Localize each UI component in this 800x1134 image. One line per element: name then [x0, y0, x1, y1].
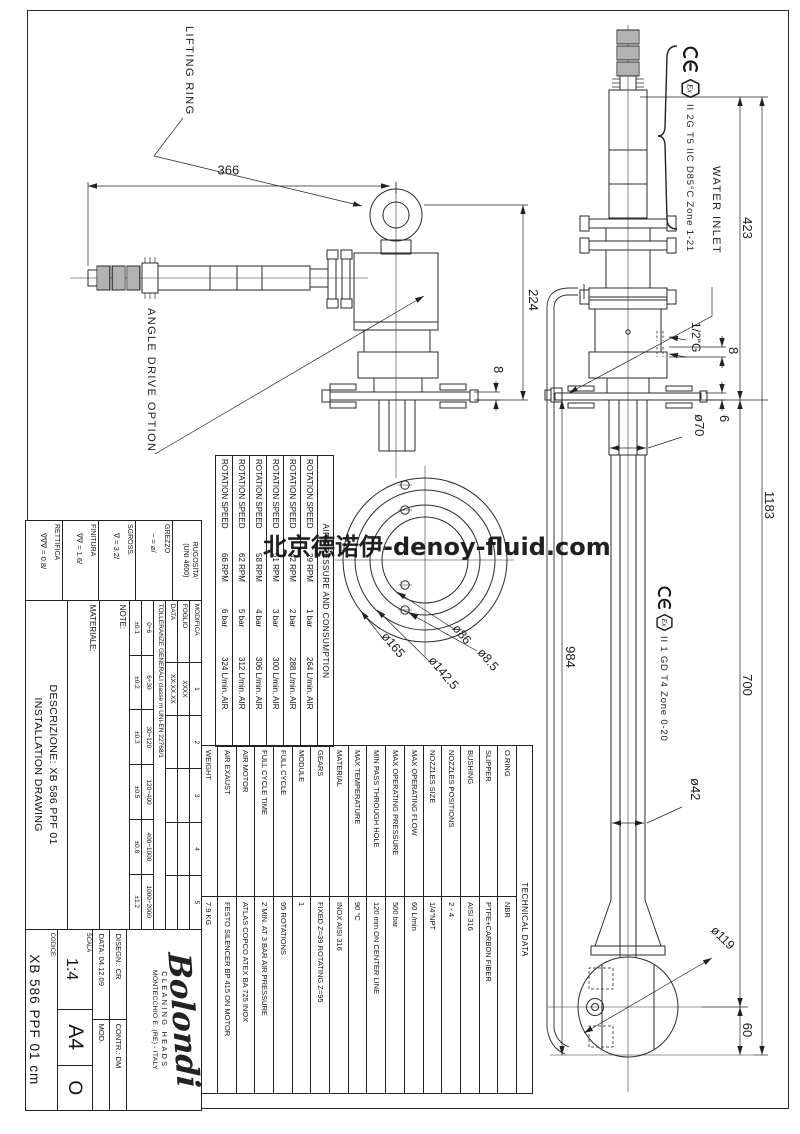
dim-plate-thickness: 6 — [717, 415, 732, 422]
tech-row: MIN PASS THROUGH HOLE120 mm ON CENTER LI… — [367, 746, 386, 1093]
drawing-code: XB 586 PPF 01 cm — [27, 930, 42, 1110]
tech-row: O.RINGNBR — [497, 746, 516, 1093]
tech-row: NOZZLES SIZE1/4"NPT — [423, 746, 442, 1093]
revision-tolerance-box: MODIFICA12345 FOGLIOXXXX DATAXX.XX.XX TO… — [26, 601, 201, 930]
mod-value: O — [58, 1066, 92, 1110]
tech-row: MAX OPERATING PRESSURE500 bar — [385, 746, 404, 1093]
rugosita-row: GREZZO~ = ⌀/ — [135, 521, 172, 600]
tech-row: FULL CYCLE TIME2 MIN. AT 3 BAR AIR PRESS… — [254, 746, 273, 1093]
material-field: MATERIALE: — [67, 601, 99, 929]
tolerances-header: TOLLERANZE GENERALI classe m UNI-EN 2276… — [153, 601, 165, 929]
rotated-drawing-area: 1183 423 700 60 984 ø70 6 8 1/2"G ø42 ø1… — [0, 0, 800, 1134]
air-table-row: ROTATION SPEED51 RPM3 bar300 L/min. AIR — [266, 456, 283, 746]
modifica-row: MODIFICA12345 — [189, 601, 201, 929]
air-table-row: ROTATION SPEED66 RPM6 bar324 L/min. AIR — [216, 456, 232, 746]
note-field: NOTE: — [99, 601, 129, 929]
svg-text:Ex: Ex — [685, 83, 695, 93]
svg-text:Ex: Ex — [660, 617, 669, 627]
dim-overall-length: 1183 — [762, 482, 777, 528]
tech-row: SLIPPERPTFE+CARBON FIBER — [479, 746, 498, 1093]
rugosita-row: FINITURA∇∇ = 1.6/ — [62, 521, 99, 600]
tech-row: MAX TEMPERATURE90 °C — [348, 746, 367, 1093]
scale-value: 1:4 — [62, 930, 80, 1009]
dim-angle-drive-length: 366 — [218, 163, 240, 178]
dim-tube-section: 700 — [740, 662, 755, 708]
dim-port-offset: 8 — [726, 347, 741, 354]
dim-motor-section: 423 — [740, 205, 755, 251]
tech-row: BUSHINGAISI 316 — [460, 746, 479, 1093]
rugosita-header: RUGOSITA' (UNI 4600) — [172, 521, 201, 600]
air-table-row: ROTATION SPEED62 RPM5 bar312 L/min. AIR — [232, 456, 249, 746]
checked-by: CONTR.: DM — [110, 1020, 126, 1110]
code-cell: CODICE: XB 586 PPF 01 cm — [26, 930, 57, 1110]
company-logo-area: Bolondi CLEANING HEADS MONTECCHIO E. (RE… — [126, 930, 201, 1110]
tech-row: AIR MOTORATLAS COPCO ATEX BA 725 INOX — [236, 746, 255, 1093]
atex-ex-icon: Ex — [656, 614, 673, 631]
tolerance-values-row: ±0.1±0.2±0.3±0.5±0.8±1.2 — [129, 601, 141, 929]
scale-format-row: SCALA 1:4 A4 O — [57, 930, 92, 1110]
ce-mark-icon — [657, 586, 672, 610]
tech-row: FULL CYCLE95 ROTATIONS — [273, 746, 292, 1093]
technical-data-title: TECHNICAL DATA — [516, 746, 532, 1093]
tolerance-ranges-row: 0÷66÷3030÷120120÷400400÷10001000÷2000 — [141, 601, 153, 929]
description-field: DESCRIZIONE: XB 586 PPF 01 INSTALLATION … — [26, 601, 67, 929]
paper-format: A4 — [58, 1010, 92, 1066]
dim-left-plate-thickness: 8 — [491, 366, 506, 373]
dim-flange-pipe-dia: ø70 — [692, 414, 707, 436]
technical-data-table: TECHNICAL DATA O.RINGNBR SLIPPERPTFE+CAR… — [198, 745, 533, 1094]
air-table-title: AIR PRESSURE AND CONSUMPTION — [317, 456, 333, 746]
dim-insertion-length: 984 — [563, 634, 578, 680]
angle-drive-option-label: ANGLE DRIVE OPTION — [145, 308, 157, 452]
air-consumption-table: AIR PRESSURE AND CONSUMPTION ROTATION SP… — [215, 455, 334, 747]
dim-sphere-offset: 60 — [740, 1010, 755, 1050]
surface-roughness-box: RUGOSITA' (UNI 4600) GREZZO~ = ⌀/ SGROSS… — [26, 521, 201, 601]
lifting-ring-label: LIFTING RING — [183, 26, 195, 116]
title-block: RUGOSITA' (UNI 4600) GREZZO~ = ⌀/ SGROSS… — [25, 520, 202, 1111]
tech-row: GEARSFIXED Z=39 ROTATING Z=95 — [310, 746, 329, 1093]
dim-angle-drive-height: 224 — [526, 272, 541, 328]
air-table-row: ROTATION SPEED42 RPM2 bar288 L/min. AIR — [283, 456, 300, 746]
air-table-row: ROTATION SPEED58 RPM4 bar306 L/min. AIR — [249, 456, 266, 746]
foglio-row: FOGLIOXXXX — [177, 601, 189, 929]
angle-drive-view — [70, 182, 478, 478]
rugosita-row: RETTIFICA∇∇∇ = 0.8/ — [26, 521, 62, 600]
tech-row: MODULE1 — [292, 746, 311, 1093]
water-inlet-label: WATER INLET — [710, 166, 722, 254]
dim-inlet-thread: 1/2"G — [689, 322, 703, 352]
drawing-date: DATA: 04.12.09 — [93, 930, 109, 1020]
mod-label: MOD. — [93, 1020, 109, 1110]
rugosita-row: SGROSS.∇ = 3.2/ — [99, 521, 136, 600]
tech-row: MATERIALINOX AISI 316 — [329, 746, 348, 1093]
watermark: 北京德诺伊-denoy-fluid.com — [263, 527, 611, 562]
tech-row: NOZZLES POSITIONS2 - 4 — [441, 746, 460, 1093]
atex-head-marking: II 1 GD T4 Zone 0-20 — [658, 636, 669, 742]
date-mod-row: DATA: 04.12.09 MOD. — [92, 930, 109, 1110]
atex-motor-marking: II 2G T5 IIC D85°C Zone 1-21 — [684, 104, 695, 252]
drawn-by: DISEGN.: CR — [110, 930, 126, 1020]
company-box: Bolondi CLEANING HEADS MONTECCHIO E. (RE… — [26, 930, 201, 1110]
drawn-checked-row: DISEGN.: CR CONTR.: DM — [109, 930, 126, 1110]
data-row: DATAXX.XX.XX — [165, 601, 177, 929]
dim-tube-dia: ø42 — [688, 778, 703, 800]
drawing-sheet: 1183 423 700 60 984 ø70 6 8 1/2"G ø42 ø1… — [0, 0, 800, 1134]
ce-mark-icon — [682, 46, 699, 73]
tech-row: AIR EXAUSTFESTO SILENCER BP 415 ON MOTOR — [217, 746, 236, 1093]
atex-ex-icon: Ex — [681, 79, 700, 98]
company-address: MONTECCHIO E. (RE) - ITALY — [151, 930, 158, 1110]
scale-cell: SCALA 1:4 — [58, 930, 92, 1010]
tech-row: MAX OPERATING FLOW60 L/min — [404, 746, 423, 1093]
air-table-row: ROTATION SPEED29 RPM1 bar264 L/min. AIR — [300, 456, 317, 746]
